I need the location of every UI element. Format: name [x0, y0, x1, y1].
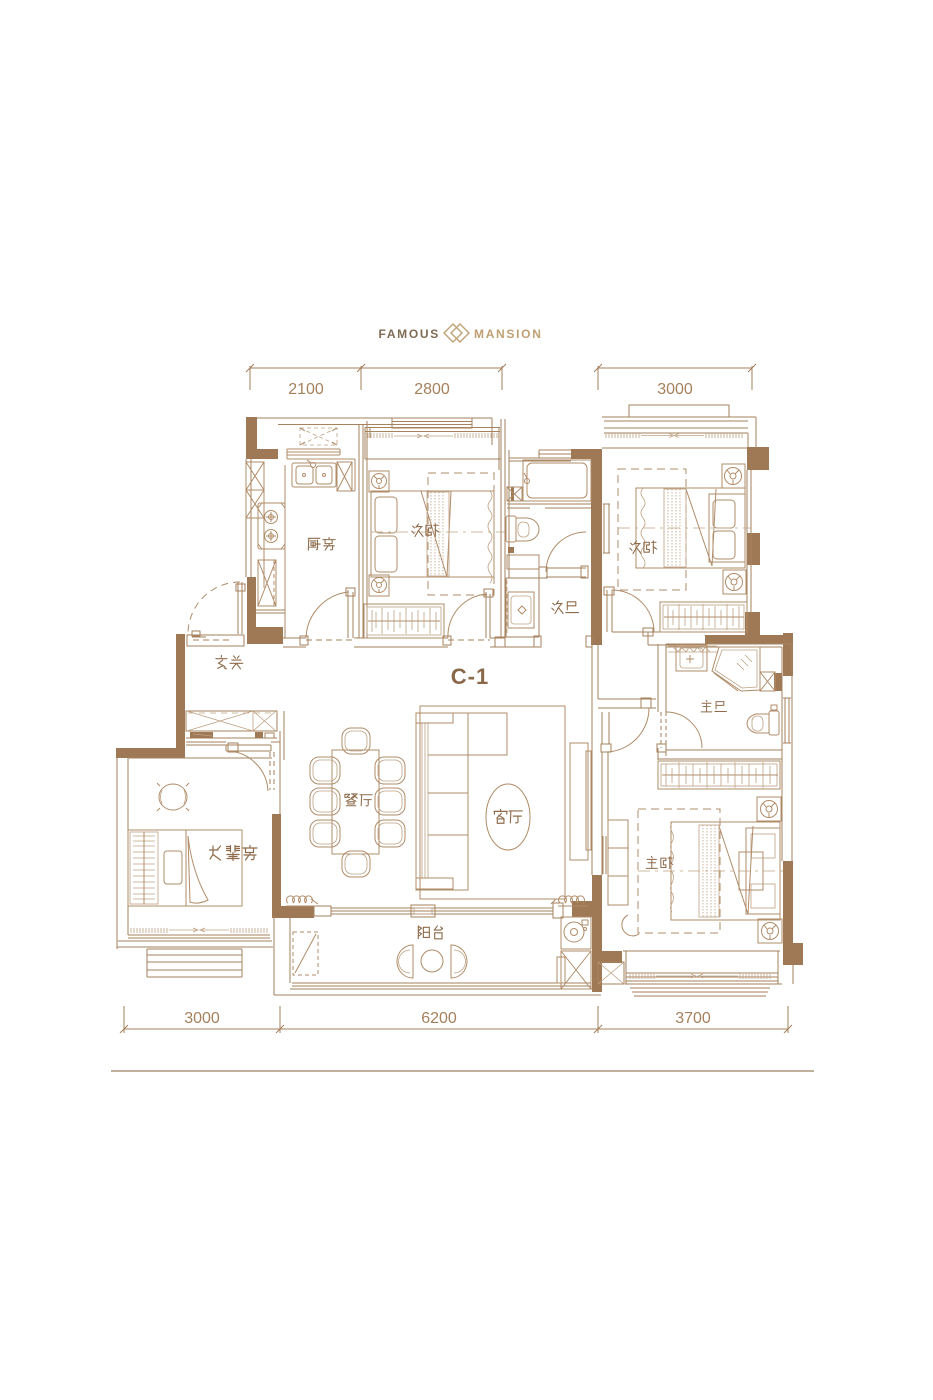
svg-text:6200: 6200 [421, 1010, 457, 1027]
svg-text:3000: 3000 [657, 381, 693, 398]
svg-text:3000: 3000 [184, 1010, 220, 1027]
svg-text:MANSION: MANSION [474, 327, 543, 341]
svg-text:2100: 2100 [288, 381, 324, 398]
svg-text:FAMOUS: FAMOUS [378, 327, 440, 341]
svg-text:C-1: C-1 [451, 664, 489, 689]
svg-text:3700: 3700 [675, 1010, 711, 1027]
svg-text:2800: 2800 [414, 381, 450, 398]
